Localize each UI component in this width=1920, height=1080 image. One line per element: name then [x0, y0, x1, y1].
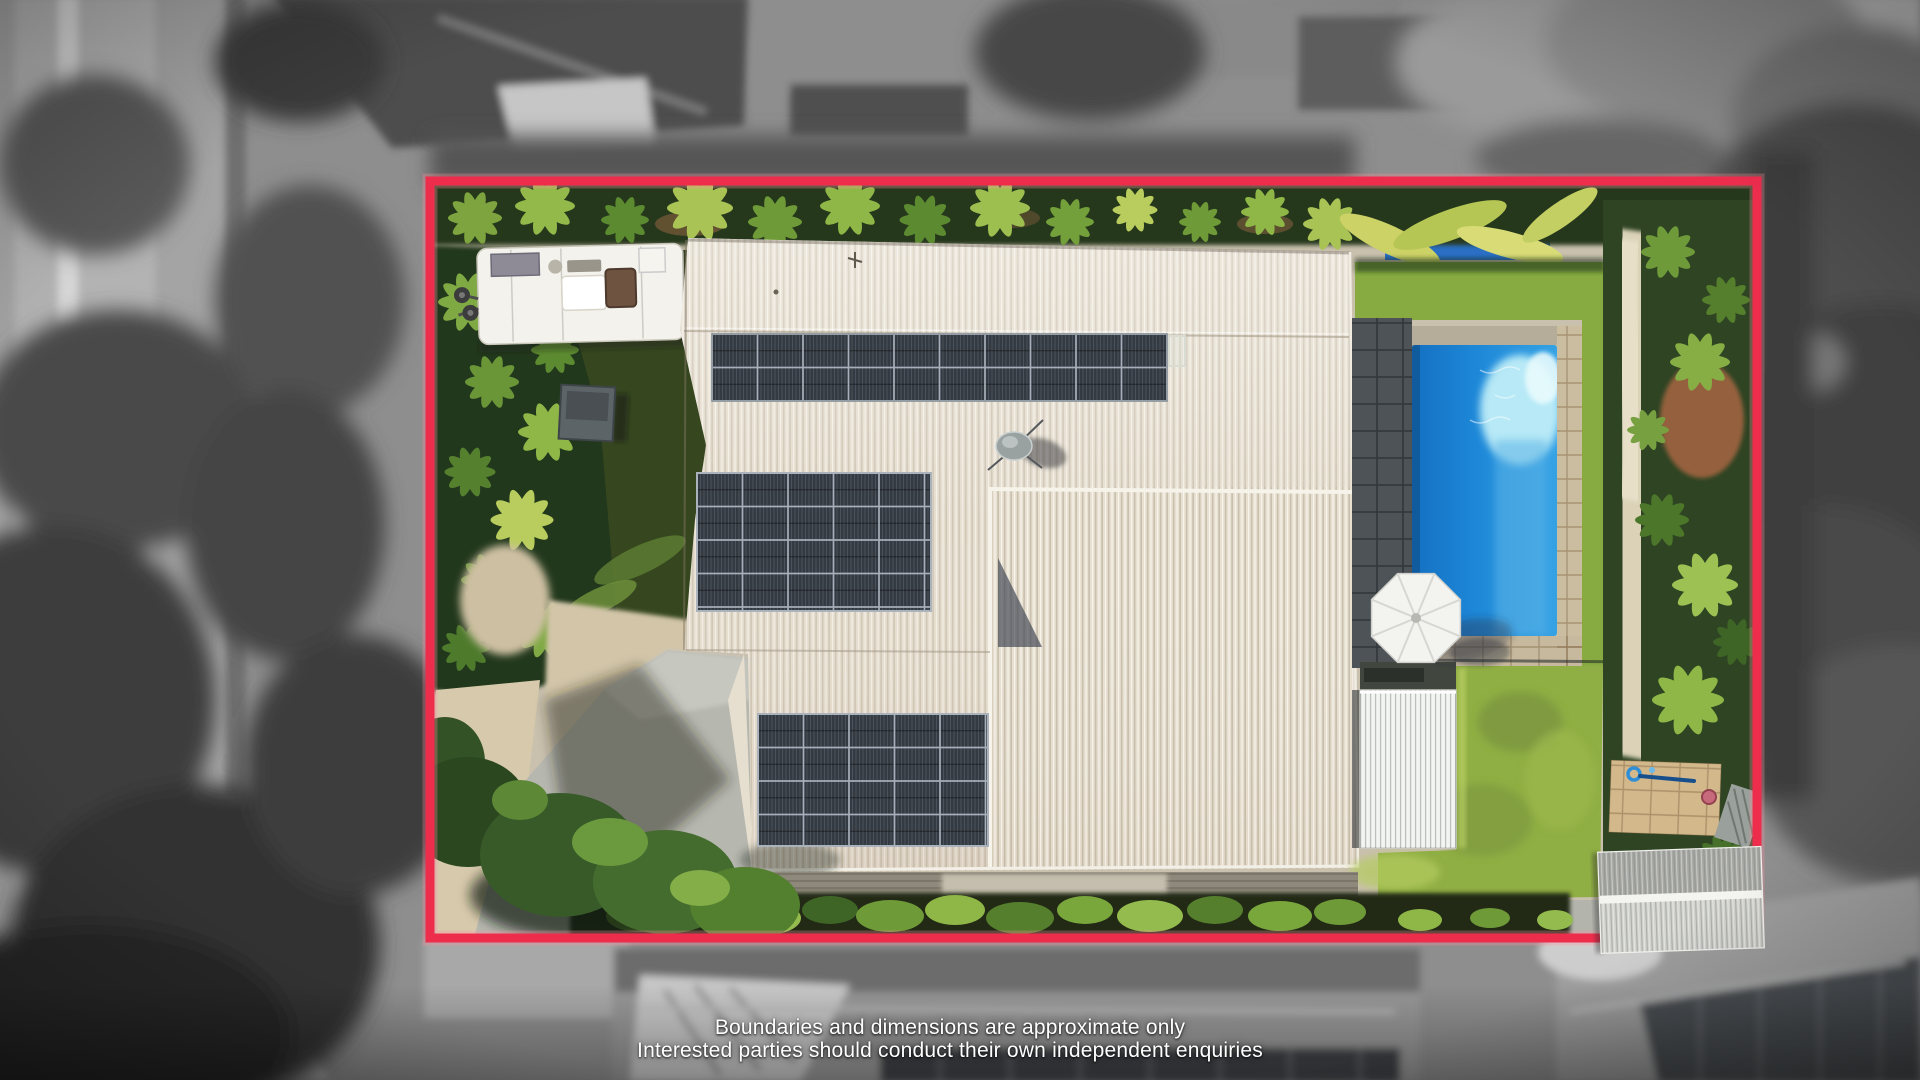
disclaimer-line1: Boundaries and dimensions are approximat…: [0, 1016, 1900, 1039]
vignette: [0, 0, 1920, 1080]
aerial-property-photo: Boundaries and dimensions are approximat…: [0, 0, 1920, 1080]
disclaimer-line2: Interested parties should conduct their …: [0, 1039, 1900, 1062]
disclaimer-text: Boundaries and dimensions are approximat…: [0, 1016, 1900, 1062]
